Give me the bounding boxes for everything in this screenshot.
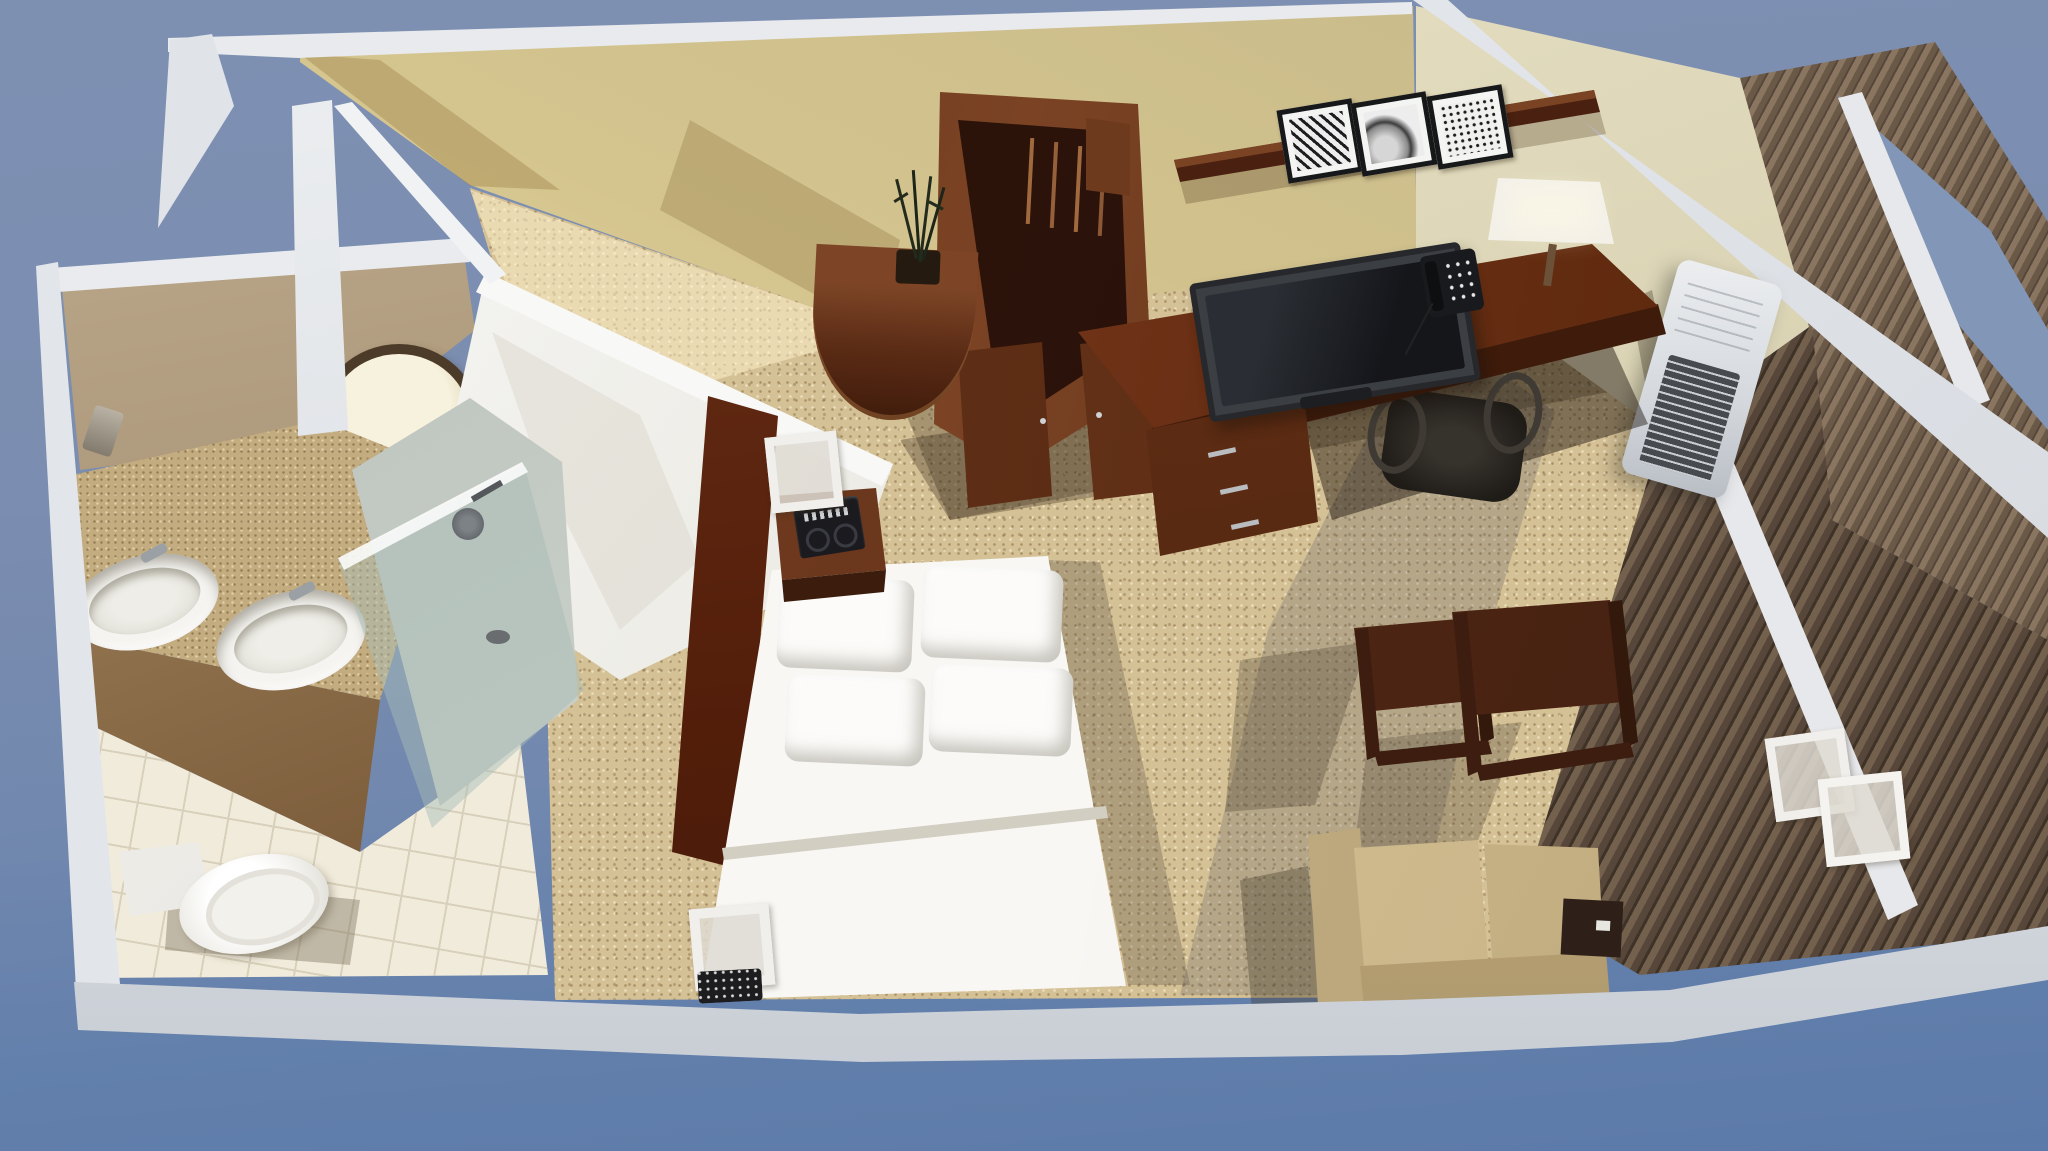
pillow-3 bbox=[784, 673, 926, 767]
print-3-art bbox=[1439, 97, 1501, 157]
framed-print-1 bbox=[1276, 98, 1363, 184]
ac-top-ridge bbox=[1674, 277, 1764, 352]
framed-print-2 bbox=[1350, 91, 1437, 177]
pillow-4 bbox=[928, 663, 1074, 757]
desk-lamp-glow bbox=[1510, 190, 1594, 232]
ac-vent-grille bbox=[1639, 354, 1741, 482]
sofa-side-table bbox=[1561, 898, 1624, 957]
shower-drain bbox=[486, 630, 510, 644]
door-handle-right bbox=[1096, 412, 1102, 418]
tissue-box-cube bbox=[764, 430, 844, 513]
clock-speaker bbox=[804, 526, 831, 553]
shower-head bbox=[452, 508, 484, 540]
side-table-card bbox=[1596, 920, 1611, 931]
pillow-2 bbox=[920, 565, 1064, 663]
door-handle-left bbox=[1040, 418, 1046, 424]
phone-keypad bbox=[1442, 256, 1480, 307]
room-rendering bbox=[0, 0, 2048, 1151]
print-2-art bbox=[1363, 104, 1425, 164]
cube-lantern-2 bbox=[1818, 771, 1911, 867]
framed-print-3 bbox=[1426, 84, 1513, 170]
print-1-art bbox=[1289, 111, 1351, 171]
phone-handset bbox=[1424, 260, 1445, 311]
sink-right-basin bbox=[226, 593, 355, 685]
clock-speaker-2 bbox=[832, 522, 859, 549]
telephone bbox=[697, 968, 763, 1003]
